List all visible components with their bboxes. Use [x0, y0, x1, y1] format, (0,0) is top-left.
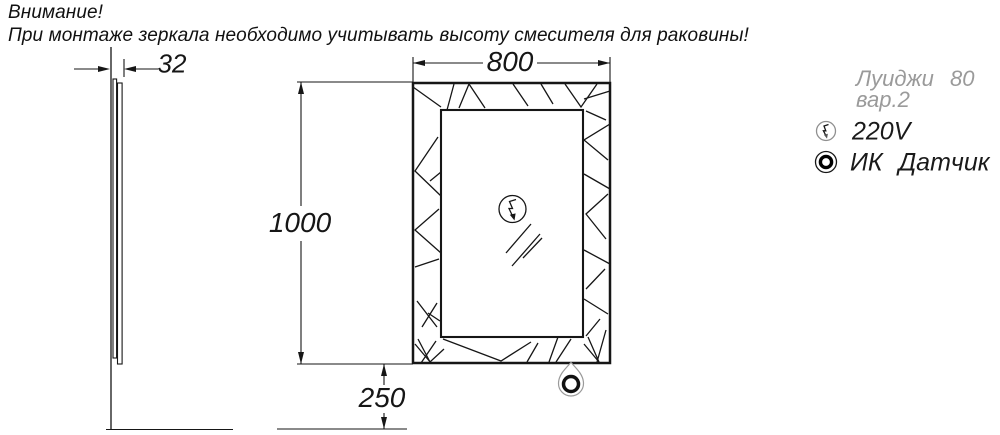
ir-sensor-marker: [559, 363, 584, 396]
legend-lightning-circle-icon: [817, 122, 836, 141]
legend-power-label: 220V: [852, 118, 910, 147]
side-view-mirror-profile: [113, 79, 122, 364]
legend-sensor-label: ИК Датчик: [850, 149, 990, 178]
dim-depth-label: 32: [158, 49, 187, 80]
mirror-glass: [441, 110, 583, 337]
dim-depth-lines: [74, 59, 158, 77]
dim-width-label: 800: [487, 46, 534, 78]
dim-height-label: 1000: [269, 207, 331, 239]
model-variant: вар.2: [856, 87, 910, 113]
technical-drawing-page: { "warning": { "line1": "Внимание!", "li…: [0, 0, 1000, 435]
dim-sensor-height-label: 250: [359, 382, 406, 414]
legend-ir-sensor-icon: [816, 152, 837, 173]
